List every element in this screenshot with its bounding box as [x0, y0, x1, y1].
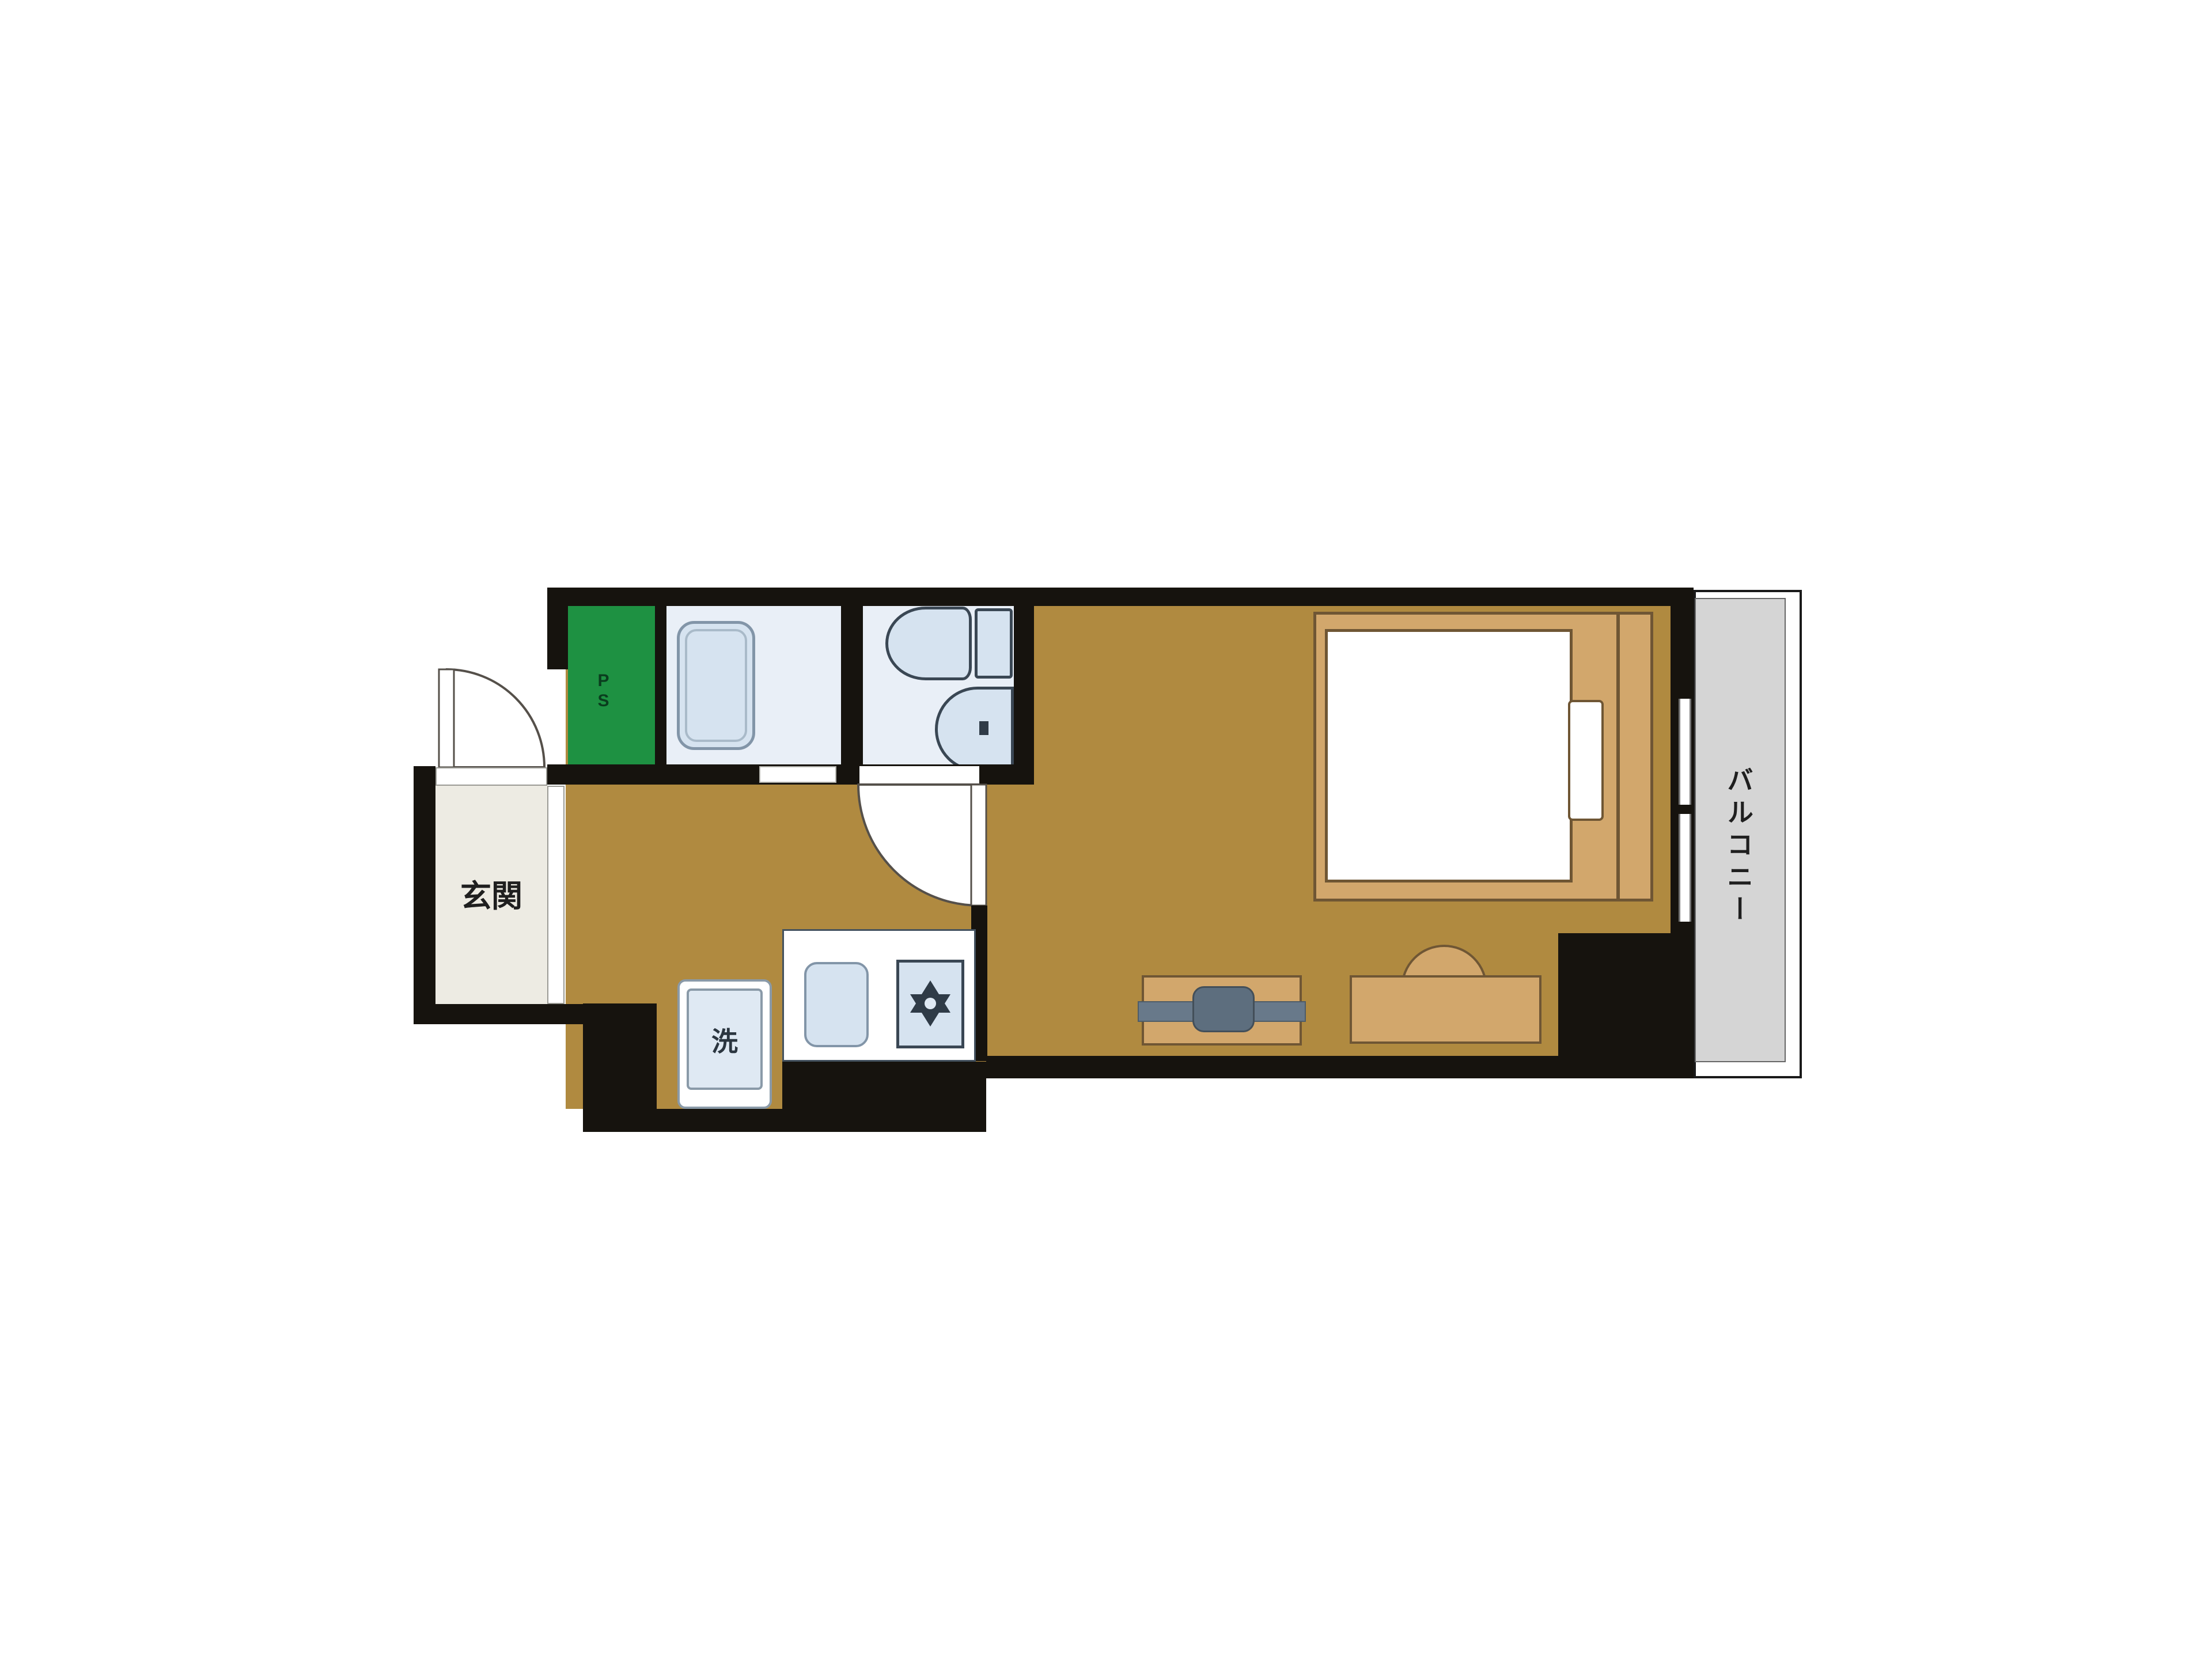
bathroom-door-opening	[759, 766, 836, 783]
stove-burner-icon	[908, 979, 952, 1028]
hand-sink-faucet-icon	[979, 721, 988, 735]
genkan-step-strip	[547, 786, 565, 1004]
top-wall	[547, 588, 1694, 606]
pipe-space-label: PS	[583, 657, 623, 726]
floor-plan: PS 玄関 洗	[0, 0, 2212, 1659]
interior-door-swing-icon	[847, 772, 997, 916]
genkan-wall-bottom	[414, 1004, 583, 1024]
genkan-wall-left	[414, 766, 435, 1024]
entrance-door-swing-icon	[426, 657, 576, 772]
toilet-tank-icon	[975, 608, 1013, 679]
kitchen-bottom-wall	[657, 1109, 986, 1132]
desk	[1350, 975, 1541, 1044]
kitchen-sink-icon	[804, 962, 869, 1047]
bed-headboard-line	[1616, 612, 1620, 902]
wall-ps-bath	[655, 606, 666, 785]
wall-toilet-room	[1014, 606, 1034, 785]
tv-object	[1192, 986, 1255, 1032]
genkan-label: 玄関	[441, 870, 541, 916]
bathtub-inner-line	[685, 629, 747, 742]
entrance-threshold	[435, 767, 547, 786]
bed-pillow	[1568, 700, 1604, 821]
wall-corner-left-mass	[583, 1003, 657, 1132]
balcony-label: バルコニー	[1720, 720, 1757, 974]
bed-mattress	[1325, 629, 1573, 882]
window-meeting-tick	[1677, 805, 1692, 814]
washing-machine-label: 洗	[696, 1020, 753, 1060]
wall-bath-toilet	[841, 606, 863, 785]
hand-sink-icon	[935, 687, 1014, 772]
toilet-bowl-icon	[885, 607, 972, 680]
